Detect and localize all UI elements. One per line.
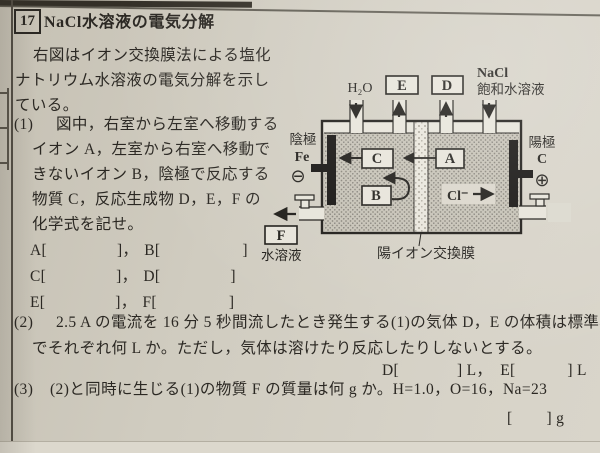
- q3-line: (2)と同時に生じる(1)の物質 F の質量は何 g か。H=1.0，O=16，…: [50, 379, 547, 401]
- nacl-solution-label: 飽和水溶液: [477, 82, 545, 97]
- minus-circle-icon: ⊖: [290, 166, 305, 187]
- answer-blank: [157, 306, 229, 307]
- left-stopcock-stem: [301, 200, 309, 208]
- answer-blank: [512, 422, 546, 423]
- ion-exchange-membrane: [414, 121, 428, 233]
- intro-line: 右図はイオン交換膜法による塩化: [33, 45, 271, 67]
- q2-number: (2): [14, 312, 33, 334]
- answer-blank-row: A[]，B[]: [30, 238, 248, 260]
- nacl-label: NaCl: [477, 66, 508, 81]
- answer-close: ]: [230, 268, 235, 286]
- substance-c-label: C: [372, 151, 382, 167]
- answer-close: ] L: [567, 362, 586, 380]
- q1-line: 図中，右室から左室へ移動する: [56, 114, 279, 136]
- adjacent-column-fragment: [7, 88, 9, 170]
- column-divider-rule: [11, 0, 13, 453]
- answer-blank: [46, 280, 116, 281]
- ion-a-label: A: [445, 151, 456, 167]
- solution-f-label: F: [277, 228, 286, 244]
- left-outlet-pipe: [276, 195, 324, 220]
- answer-close: ]，: [116, 264, 137, 286]
- ion-b-label: B: [371, 188, 381, 204]
- cathode-label: 陰極: [290, 132, 317, 147]
- membrane-pointer-line: [419, 233, 421, 246]
- problem-title: NaCl水溶液の電気分解: [44, 12, 215, 34]
- h2o-label: H₂O: [347, 81, 372, 96]
- answer-blank: [160, 280, 230, 281]
- problem-number-box: 17: [14, 9, 41, 34]
- q1-number: (1): [14, 114, 33, 136]
- electrolysis-cell-diagram: H₂O E D NaCl 飽和水溶液 陰極 Fe ⊖ 陽極 C ⊕ C A B: [255, 58, 575, 272]
- answer-blank: [515, 374, 567, 375]
- answer-blank-row: [] g: [507, 410, 564, 428]
- anode-label: 陽極: [529, 135, 556, 150]
- cathode-material-label: Fe: [295, 150, 310, 165]
- answer-blank: [45, 306, 115, 307]
- answer-blank: [399, 374, 457, 375]
- q2-line: でそれぞれ何 L か。ただし，気体は溶けたり反応したりしないとする。: [32, 338, 542, 360]
- q1-line: イオン A，左室から右室へ移動で: [32, 139, 270, 161]
- answer-blank: [160, 254, 242, 255]
- left-stopcock-handle: [295, 195, 314, 200]
- q3-number: (3): [14, 379, 33, 401]
- right-stopcock-stem: [536, 199, 544, 206]
- intro-line: ナトリウム水溶液の電気分解を示し: [15, 70, 269, 92]
- answer-open: D[: [382, 362, 399, 380]
- cl-ion-label: Cl⁻: [447, 189, 468, 204]
- answer-blank-row: D[] L，E[] L: [382, 358, 587, 380]
- answer-close: ]，: [117, 238, 138, 260]
- erased-smudge: [548, 203, 571, 222]
- answer-open: C[: [30, 268, 46, 286]
- q1-line: きないイオン B，陰極で反応する: [32, 164, 270, 186]
- textbook-page-photo: 17 NaCl水溶液の電気分解 右図はイオン交換膜法による塩化 ナトリウム水溶液…: [0, 0, 600, 453]
- right-stopcock-handle: [530, 194, 549, 199]
- q2-line: 2.5 A の電流を 16 分 5 秒間流したとき発生する(1)の気体 D，E …: [56, 312, 600, 334]
- answer-blank-row: C[]，D[]: [30, 264, 236, 286]
- solution-caption: 水溶液: [261, 248, 302, 263]
- right-outlet-pipe: [519, 194, 571, 222]
- answer-close: ]，: [115, 290, 136, 312]
- adjacent-column-fragment: [0, 162, 9, 164]
- q1-line: 化学式を記せ。: [32, 214, 143, 236]
- gas-d-box-label: D: [442, 78, 452, 94]
- gas-e-box-label: E: [397, 78, 407, 94]
- answer-close: ]: [242, 242, 247, 260]
- membrane-label: 陽イオン交換膜: [377, 245, 475, 262]
- plus-circle-icon: ⊕: [534, 170, 549, 191]
- answer-open: [: [507, 410, 512, 428]
- answer-close: ]: [229, 294, 234, 312]
- q1-line: 物質 C，反応生成物 D，E，F の: [32, 189, 261, 211]
- answer-close: ] L，: [457, 358, 492, 380]
- answer-open: E[: [30, 294, 45, 312]
- answer-open: A[: [30, 242, 47, 260]
- answer-open: F[: [143, 294, 157, 312]
- answer-open: D[: [143, 268, 160, 286]
- adjacent-column-fragment: [0, 127, 9, 129]
- adjacent-column-fragment: [0, 92, 9, 94]
- answer-blank: [47, 254, 117, 255]
- answer-open: E[: [500, 362, 515, 380]
- cell-tank: [322, 121, 521, 233]
- answer-close: ] g: [546, 410, 564, 428]
- page-bottom-edge: [0, 441, 600, 453]
- anode-material-label: C: [537, 152, 547, 167]
- answer-open: B[: [144, 242, 160, 260]
- answer-blank-row: E[]，F[]: [30, 290, 234, 312]
